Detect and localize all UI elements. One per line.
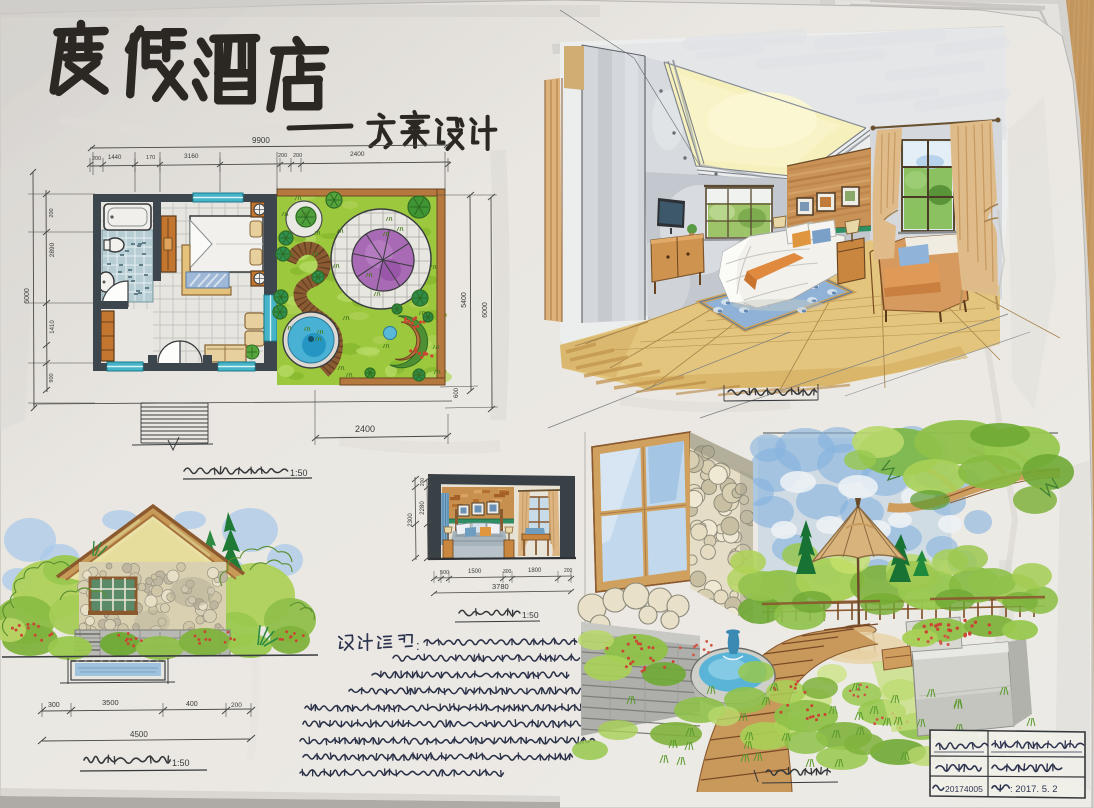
svg-text:2400: 2400 [355, 424, 375, 434]
svg-text:2280: 2280 [420, 501, 426, 515]
svg-text:200: 200 [564, 568, 573, 574]
svg-text:4500: 4500 [130, 730, 148, 739]
svg-text::: : [416, 638, 420, 653]
svg-text:500: 500 [440, 570, 449, 576]
svg-text:9900: 9900 [252, 136, 270, 145]
svg-text:900: 900 [49, 373, 55, 382]
svg-text:200: 200 [231, 702, 242, 709]
svg-text:20174005: 20174005 [945, 784, 983, 794]
svg-text:200: 200 [278, 153, 287, 159]
svg-text:1:50: 1:50 [290, 468, 308, 478]
svg-text:200: 200 [293, 153, 302, 159]
svg-text:6000: 6000 [24, 288, 31, 304]
svg-text:3160: 3160 [184, 153, 199, 160]
svg-text:: 2017. 5. 2: : 2017. 5. 2 [1010, 784, 1058, 795]
svg-text:600: 600 [454, 387, 460, 398]
svg-text:6000: 6000 [482, 302, 489, 318]
svg-text:1:50: 1:50 [172, 758, 190, 768]
svg-text:200: 200 [92, 156, 101, 162]
svg-text:1500: 1500 [468, 569, 482, 575]
svg-text:5400: 5400 [461, 292, 468, 308]
svg-text:1410: 1410 [50, 320, 56, 334]
svg-text:2400: 2400 [350, 151, 365, 158]
svg-text:300: 300 [503, 569, 512, 575]
svg-text:1:50: 1:50 [522, 610, 539, 620]
svg-text:1800: 1800 [528, 568, 542, 574]
svg-text:200: 200 [49, 208, 55, 217]
svg-text:3500: 3500 [102, 698, 119, 707]
svg-text:300: 300 [48, 702, 60, 709]
svg-text:2890: 2890 [49, 242, 56, 257]
svg-text:2300: 2300 [408, 513, 414, 527]
svg-text:3780: 3780 [492, 582, 509, 591]
svg-text:200: 200 [420, 478, 426, 487]
svg-text:1440: 1440 [108, 155, 122, 161]
svg-text:400: 400 [186, 701, 198, 708]
svg-text:170: 170 [146, 155, 155, 161]
